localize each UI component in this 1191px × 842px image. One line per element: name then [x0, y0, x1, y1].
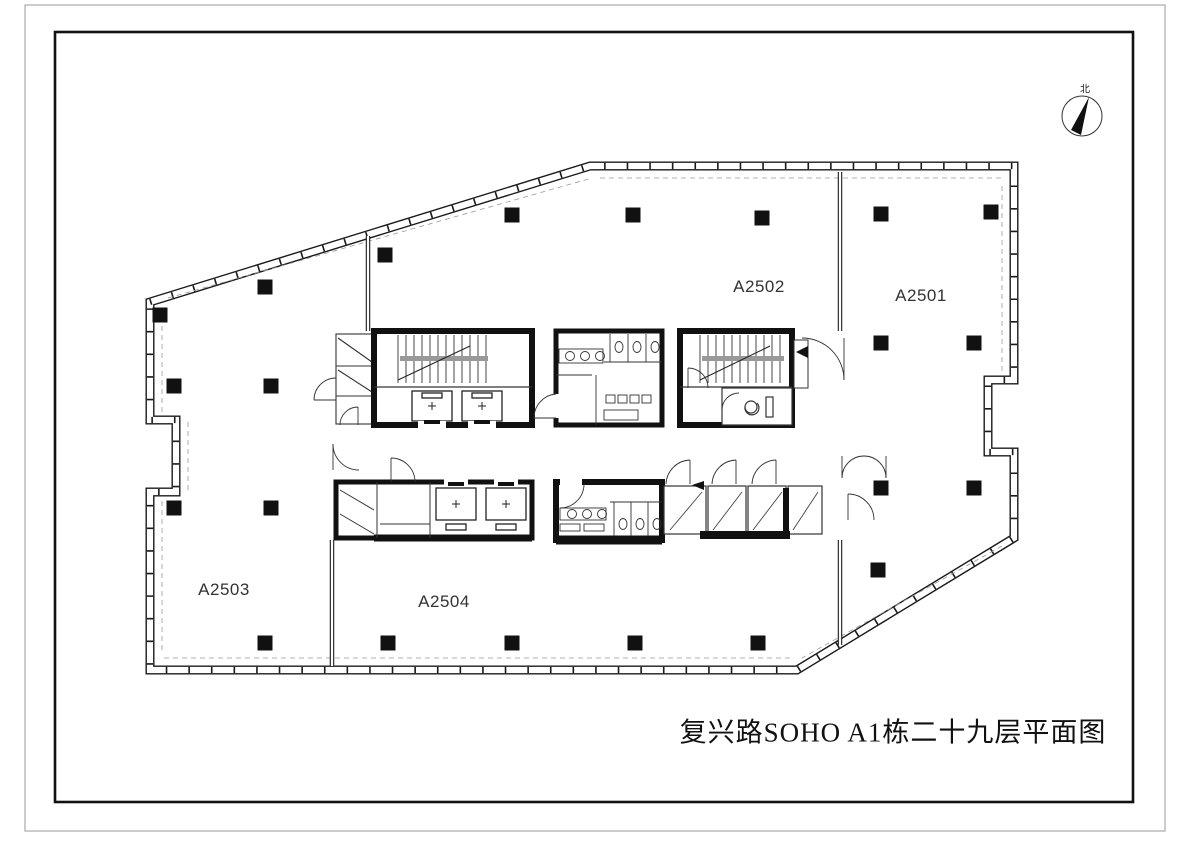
- door-gap: [553, 394, 559, 418]
- column: [626, 208, 641, 223]
- column: [264, 379, 279, 394]
- column: [505, 208, 520, 223]
- door-gap: [560, 479, 582, 485]
- column: [505, 636, 520, 651]
- core-upper-band: [336, 331, 844, 429]
- column: [751, 636, 766, 651]
- stair-landing: [702, 356, 784, 361]
- column: [967, 481, 982, 496]
- elevator-sill: [424, 420, 440, 424]
- north-label: 北: [1080, 81, 1090, 96]
- room-label-a2503: A2503: [198, 580, 250, 600]
- column: [378, 248, 393, 263]
- plan-title: 复兴路SOHO A1栋二十九层平面图: [680, 711, 1107, 750]
- column: [984, 205, 999, 220]
- column: [874, 336, 889, 351]
- column: [153, 308, 168, 323]
- room-label-a2504: A2504: [418, 592, 470, 612]
- column: [264, 501, 279, 516]
- column: [755, 211, 770, 226]
- stair-block-right: [680, 331, 792, 425]
- column: [628, 636, 643, 651]
- column: [167, 501, 182, 516]
- room-label-a2502: A2502: [733, 277, 785, 297]
- column: [874, 207, 889, 222]
- drawing-sheet: A2501 A2502 A2503 A2504 复兴路SOHO A1栋二十九层平…: [0, 0, 1191, 842]
- column: [381, 636, 396, 651]
- column: [967, 336, 982, 351]
- vestibule-left: [336, 334, 374, 424]
- washroom-lower: [556, 479, 662, 540]
- accessible-wc: [722, 388, 792, 425]
- room-label-a2501: A2501: [895, 286, 947, 306]
- column: [874, 481, 889, 496]
- column: [258, 280, 273, 295]
- column: [167, 379, 182, 394]
- north-arrow: [1062, 96, 1102, 136]
- column: [258, 636, 273, 651]
- stair-elevator-block-left: [374, 331, 532, 429]
- north-needle: [1071, 97, 1089, 135]
- elevator-sill: [474, 420, 490, 424]
- column: [871, 563, 886, 578]
